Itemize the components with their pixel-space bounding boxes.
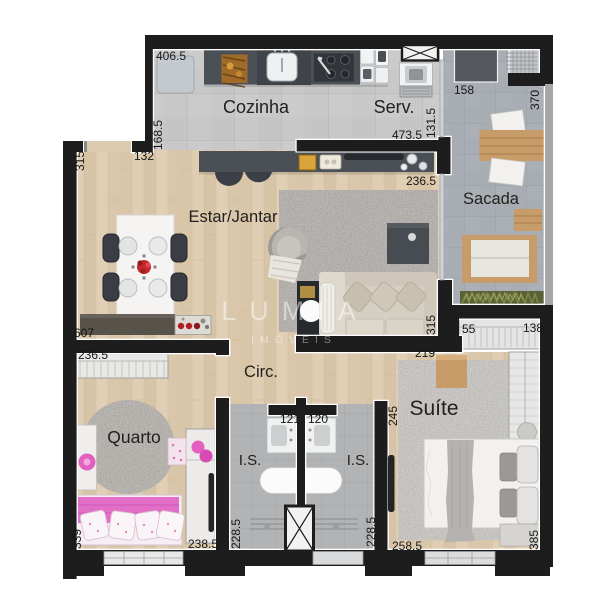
svg-text:339: 339 [70,529,84,549]
svg-text:Cozinha: Cozinha [223,97,290,117]
svg-text:219: 219 [415,346,435,360]
svg-text:55: 55 [462,322,476,336]
svg-text:236.5: 236.5 [406,174,436,188]
svg-text:Quarto: Quarto [107,427,161,447]
svg-text:138: 138 [523,321,543,335]
svg-text:406.5: 406.5 [156,49,186,63]
svg-text:236.5: 236.5 [78,348,108,362]
svg-text:Estar/Jantar: Estar/Jantar [189,208,278,226]
svg-text:LUMIA: LUMIA [221,296,369,326]
svg-text:IMÓVEIS: IMÓVEIS [251,333,337,346]
svg-text:158: 158 [454,83,474,97]
svg-text:607: 607 [74,326,94,340]
svg-text:385: 385 [527,530,541,550]
svg-text:315: 315 [73,151,87,171]
svg-text:Sacada: Sacada [463,190,520,208]
svg-text:I.S.: I.S. [239,452,262,469]
svg-text:473.5: 473.5 [392,128,422,142]
svg-text:228.5: 228.5 [364,517,378,547]
svg-text:168.5: 168.5 [151,120,165,150]
svg-text:132: 132 [134,149,154,163]
svg-text:I.S.: I.S. [347,452,370,469]
svg-text:121: 121 [280,412,300,426]
svg-text:Circ.: Circ. [244,363,278,381]
svg-text:238.5: 238.5 [188,537,218,551]
svg-text:Serv.: Serv. [374,97,415,117]
svg-text:228.5: 228.5 [229,519,243,549]
svg-text:370: 370 [528,90,542,110]
svg-text:120: 120 [308,412,328,426]
svg-text:245: 245 [386,406,400,426]
svg-text:258.5: 258.5 [392,539,422,553]
svg-text:131.5: 131.5 [424,108,438,138]
svg-text:Suíte: Suíte [409,397,458,420]
svg-text:315: 315 [424,315,438,335]
